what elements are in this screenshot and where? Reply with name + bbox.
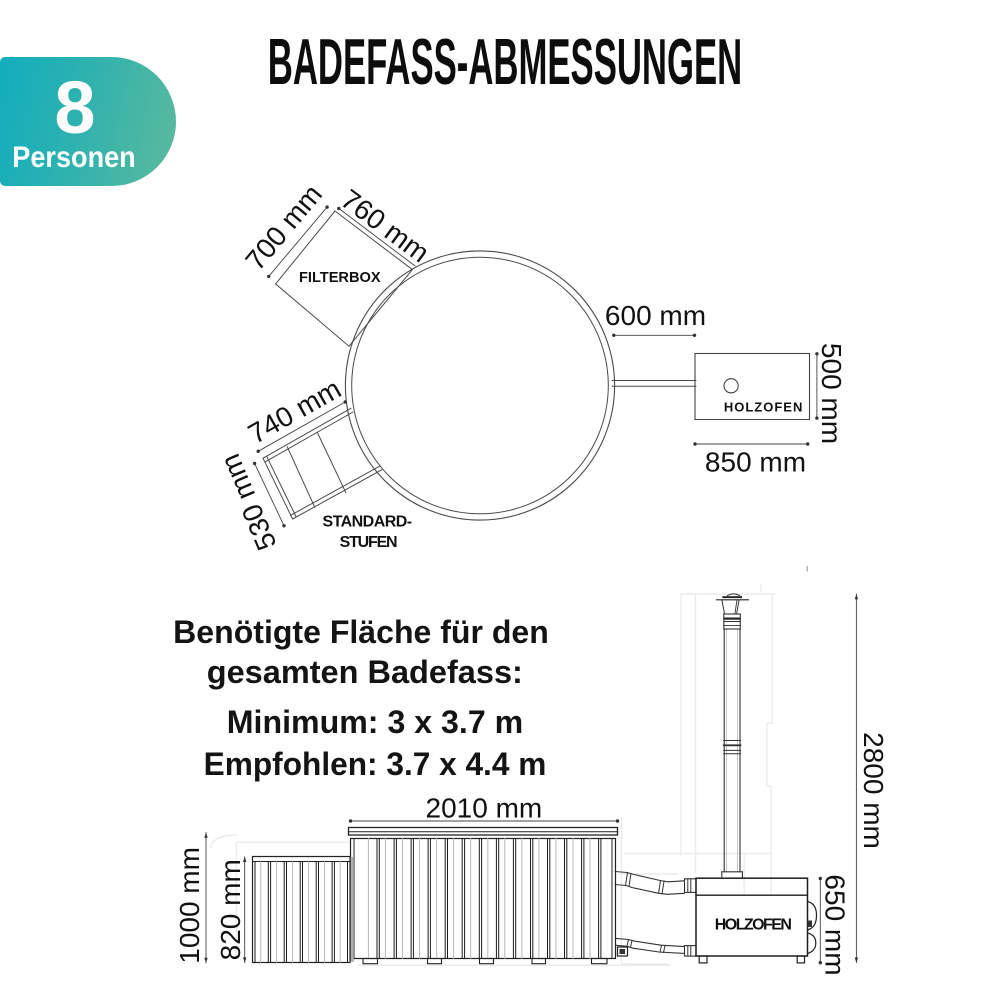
svg-text:FILTERBOX: FILTERBOX (299, 270, 381, 286)
svg-text:650 mm: 650 mm (820, 874, 851, 975)
svg-text:760 mm: 760 mm (335, 183, 435, 268)
svg-text:2800 mm: 2800 mm (858, 732, 889, 849)
svg-text:600 mm: 600 mm (605, 300, 706, 331)
svg-text:2010 mm: 2010 mm (426, 793, 543, 824)
svg-text:HOLZOFEN: HOLZOFEN (715, 917, 792, 934)
svg-text:850 mm: 850 mm (705, 447, 806, 478)
svg-text:1000 mm: 1000 mm (174, 847, 205, 964)
svg-text:740 mm: 740 mm (243, 373, 346, 450)
svg-text:820 mm: 820 mm (215, 859, 246, 960)
svg-text:500 mm: 500 mm (816, 343, 847, 444)
svg-text:STANDARD-: STANDARD- (323, 513, 412, 530)
svg-text:HOLZOFEN: HOLZOFEN (724, 400, 804, 415)
svg-text:530 mm: 530 mm (214, 449, 282, 554)
svg-text:STUFEN: STUFEN (340, 534, 397, 551)
svg-text:700 mm: 700 mm (239, 179, 328, 276)
